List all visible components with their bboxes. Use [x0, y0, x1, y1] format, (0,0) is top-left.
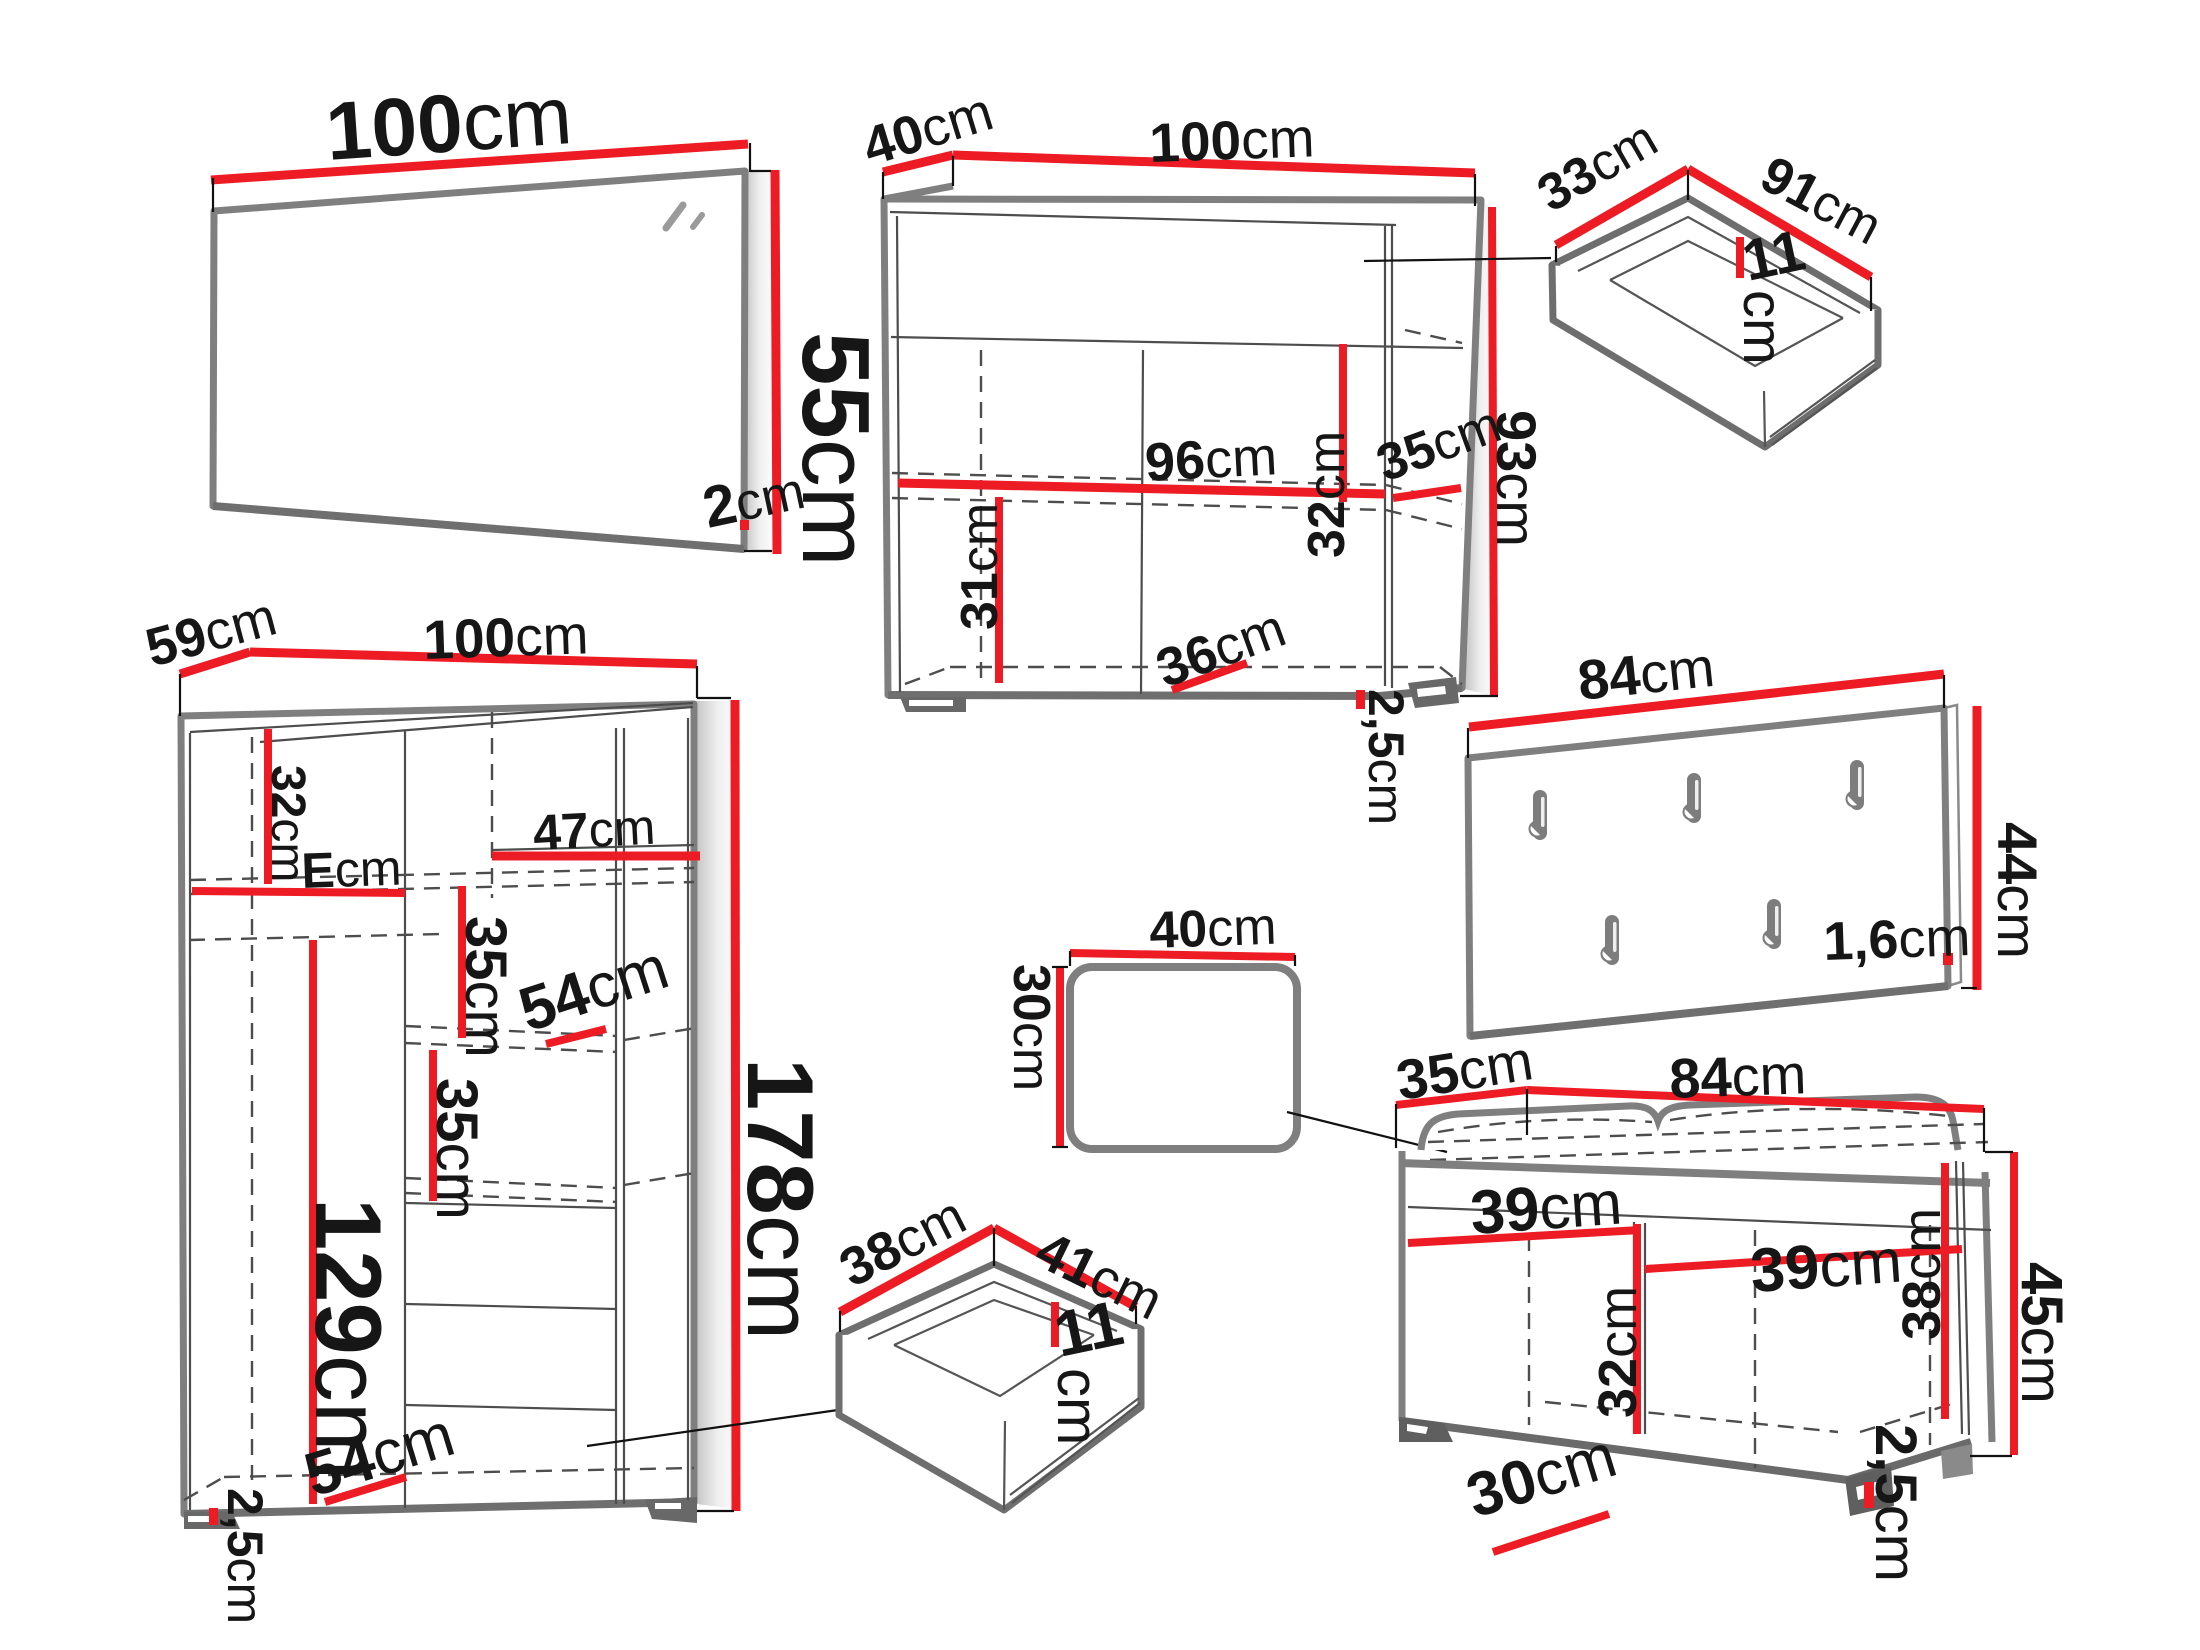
- svg-text:32cm: 32cm: [1298, 431, 1356, 558]
- svg-text:96cm: 96cm: [1143, 426, 1278, 493]
- svg-text:2,5cm: 2,5cm: [1358, 689, 1414, 825]
- svg-text:40cm: 40cm: [1148, 898, 1277, 960]
- svg-text:1,6cm: 1,6cm: [1822, 907, 1971, 972]
- svg-text:cm: cm: [1732, 290, 1795, 365]
- svg-text:31cm: 31cm: [951, 503, 1009, 630]
- svg-text:2,5cm: 2,5cm: [217, 1488, 273, 1624]
- svg-text:84cm: 84cm: [1668, 1042, 1807, 1110]
- svg-text:32cm: 32cm: [1588, 1286, 1648, 1418]
- svg-text:39cm: 39cm: [1468, 1169, 1624, 1248]
- svg-text:35cm: 35cm: [424, 1078, 489, 1220]
- svg-text:45cm: 45cm: [2009, 1262, 2074, 1404]
- svg-text:2,5cm: 2,5cm: [1863, 1424, 1928, 1582]
- svg-text:30cm: 30cm: [1002, 964, 1060, 1091]
- svg-text:39cm: 39cm: [1748, 1227, 1904, 1306]
- svg-text:100cm: 100cm: [323, 70, 575, 178]
- svg-text:178cm: 178cm: [728, 1058, 833, 1340]
- svg-text:35cm: 35cm: [453, 916, 518, 1058]
- svg-text:55cm: 55cm: [782, 332, 889, 567]
- svg-text:47cm: 47cm: [532, 799, 657, 861]
- svg-text:100cm: 100cm: [1148, 106, 1315, 174]
- svg-text:100cm: 100cm: [422, 603, 589, 671]
- svg-text:cm: cm: [1045, 1368, 1110, 1445]
- svg-text:Ecm: Ecm: [300, 840, 402, 899]
- svg-text:44cm: 44cm: [1986, 822, 2049, 959]
- svg-text:93cm: 93cm: [1485, 410, 1548, 547]
- svg-text:38cm: 38cm: [1892, 1208, 1952, 1340]
